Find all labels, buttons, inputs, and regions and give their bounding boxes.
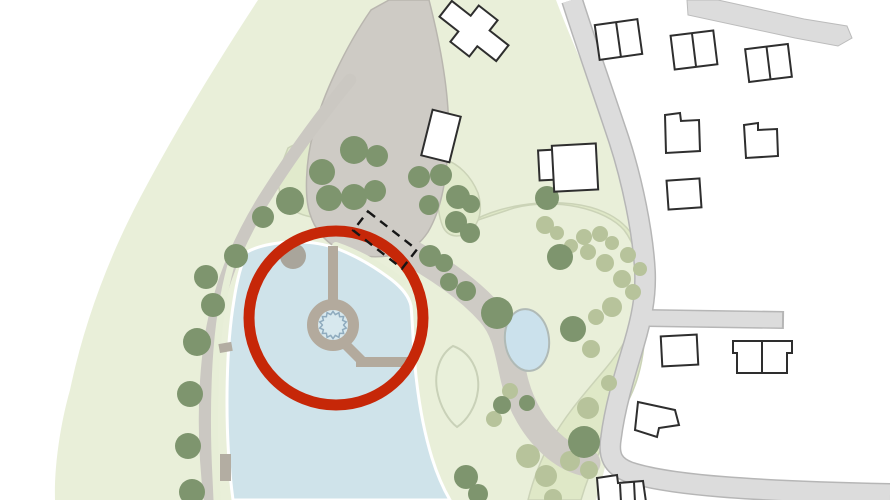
sage-tree <box>580 461 598 479</box>
jetty-south <box>220 454 231 481</box>
site-plan-map: .bldg{fill:#ffffff;stroke:#2e2e2e;stroke… <box>0 0 890 500</box>
building-main-square <box>552 143 598 191</box>
sage-tree <box>588 309 604 325</box>
building-l-west <box>665 113 700 153</box>
dark-tree <box>309 159 335 185</box>
dark-tree <box>519 395 535 411</box>
dark-tree <box>440 273 458 291</box>
sage-tree <box>535 465 557 487</box>
dark-tree <box>408 166 430 188</box>
sage-tree <box>633 262 647 276</box>
building-square-upper-footprint <box>667 178 702 209</box>
sage-tree <box>550 226 564 240</box>
dark-tree <box>430 164 452 186</box>
sage-tree <box>613 270 631 288</box>
dark-tree <box>460 223 480 243</box>
sage-tree <box>582 340 600 358</box>
sage-tree <box>620 247 636 263</box>
dark-tree <box>175 433 201 459</box>
sage-tree <box>592 226 608 242</box>
building-square-lower <box>661 335 699 367</box>
sage-tree <box>577 397 599 419</box>
dark-tree <box>252 206 274 228</box>
dark-tree <box>493 396 511 414</box>
dark-tree <box>183 328 211 356</box>
dark-tree <box>481 297 513 329</box>
dark-tree <box>366 145 388 167</box>
dark-tree <box>364 180 386 202</box>
building-angled <box>635 402 679 437</box>
dark-tree <box>316 185 342 211</box>
building-twin-c <box>745 44 792 82</box>
sage-tree <box>605 236 619 250</box>
site-plan-canvas: .bldg{fill:#ffffff;stroke:#2e2e2e;stroke… <box>0 0 890 500</box>
street-branch <box>646 318 782 320</box>
sage-tree <box>601 375 617 391</box>
dark-tree <box>547 244 573 270</box>
dark-tree <box>177 381 203 407</box>
sage-tree <box>602 297 622 317</box>
dark-tree <box>276 187 304 215</box>
building-bottom-divider-2 <box>634 482 635 500</box>
dark-tree <box>560 316 586 342</box>
sage-tree <box>596 254 614 272</box>
dark-tree <box>462 195 480 213</box>
sage-tree <box>516 444 540 468</box>
building-l-east <box>744 123 778 158</box>
sage-tree <box>625 284 641 300</box>
dark-tree <box>419 195 439 215</box>
dark-tree <box>340 136 368 164</box>
sage-tree <box>576 229 592 245</box>
sage-tree <box>580 244 596 260</box>
dark-tree <box>456 281 476 301</box>
dark-tree <box>224 244 248 268</box>
building-bottom-divider-1 <box>620 484 621 500</box>
dark-tree <box>201 293 225 317</box>
building-twin-b <box>671 31 718 70</box>
dark-tree <box>341 184 367 210</box>
building-square-lower-footprint <box>661 335 699 367</box>
building-square-upper <box>667 178 702 209</box>
dark-tree <box>194 265 218 289</box>
dark-tree <box>568 426 600 458</box>
building-twin-a <box>595 19 642 60</box>
dark-tree <box>435 254 453 272</box>
building-notched-pair <box>733 341 792 373</box>
